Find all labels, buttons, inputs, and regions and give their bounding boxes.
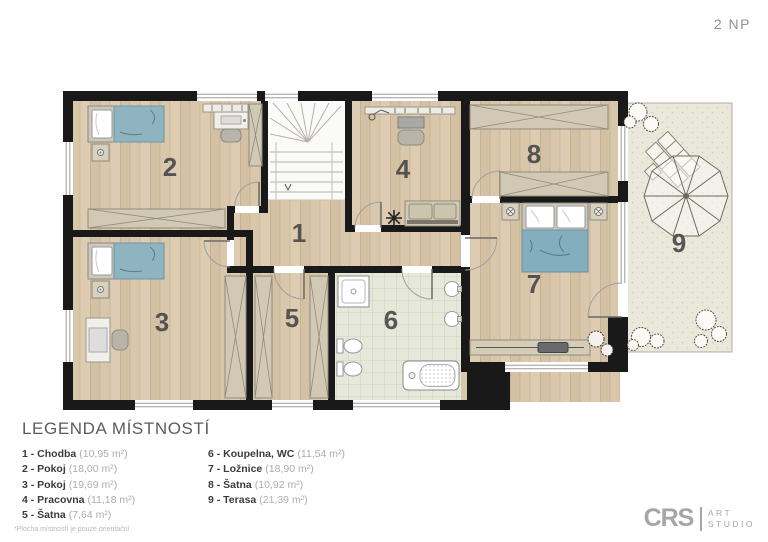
legend-column-2: 6 - Koupelna, WC(11,54 m²) 7 - Ložnice(1… — [208, 447, 345, 523]
chair — [112, 330, 128, 350]
room-label-9: 9 — [672, 228, 686, 258]
monitor — [398, 117, 424, 128]
bidet — [344, 362, 362, 376]
mouse — [243, 119, 246, 122]
legend-item: 2 - Pokoj(18,00 m²) — [22, 462, 208, 477]
legend-item: 7 - Ložnice(18,90 m²) — [208, 462, 345, 477]
blanket — [522, 230, 588, 272]
legend-footnote: *Plocha místností je pouze orientační — [14, 526, 130, 533]
legend-item: 9 - Terasa(21,39 m²) — [208, 493, 345, 508]
parasol — [644, 156, 728, 236]
legend-title: LEGENDA MÍSTNOSTÍ — [22, 419, 345, 439]
legend: LEGENDA MÍSTNOSTÍ 1 - Chodba(10,95 m²) 2… — [22, 419, 345, 523]
legend-item: 3 - Pokoj(19,69 m²) — [22, 478, 208, 493]
legend-column-1: 1 - Chodba(10,95 m²) 2 - Pokoj(18,00 m²)… — [22, 447, 208, 523]
blanket — [114, 106, 164, 142]
chair — [221, 129, 241, 142]
room-label-2: 2 — [163, 152, 177, 182]
legend-item: 5 - Šatna(7,64 m²) — [22, 508, 208, 523]
logo-sub-line2: STUDIO — [708, 519, 755, 529]
pillow — [557, 206, 585, 228]
plant — [588, 331, 604, 347]
logo-sub-line1: ART — [708, 508, 755, 518]
floorplan-page: { "header": { "floor_label": "2 NP" }, "… — [0, 0, 768, 542]
toilet — [344, 339, 362, 353]
pillow — [526, 206, 554, 228]
legend-item: 1 - Chodba(10,95 m²) — [22, 447, 208, 462]
legend-item: 4 - Pracovna(11,18 m²) — [22, 493, 208, 508]
pillow — [92, 110, 112, 138]
chair — [398, 130, 424, 145]
room-label-3: 3 — [155, 307, 169, 337]
tv — [538, 343, 568, 353]
pillow — [92, 247, 112, 275]
plant — [601, 344, 613, 356]
keyboard — [221, 116, 241, 124]
logo-divider-line — [700, 507, 702, 531]
legend-item: 8 - Šatna(10,92 m²) — [208, 478, 345, 493]
room-label-4: 4 — [396, 154, 411, 184]
staircase-floor — [268, 101, 345, 200]
room-label-5: 5 — [285, 303, 299, 333]
blanket — [114, 243, 164, 279]
plant — [386, 210, 402, 226]
studio-logo: CRS ART STUDIO — [644, 504, 755, 533]
room-label-7: 7 — [527, 269, 541, 299]
room-label-1: 1 — [292, 218, 306, 248]
computer — [89, 328, 107, 352]
room-label-6: 6 — [384, 305, 398, 335]
room-label-8: 8 — [527, 139, 541, 169]
wall-shelf — [203, 104, 248, 112]
legend-item: 6 - Koupelna, WC(11,54 m²) — [208, 447, 345, 462]
logo-name: CRS — [644, 504, 694, 533]
